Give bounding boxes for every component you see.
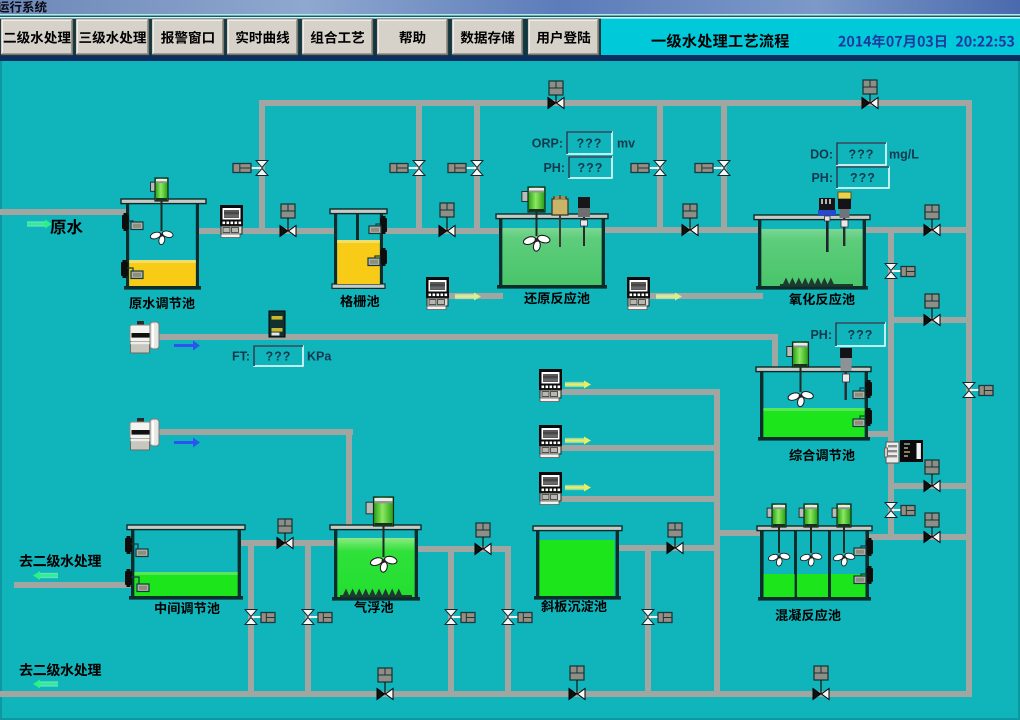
svg-text:???: ???	[578, 161, 604, 175]
svg-text:mv: mv	[617, 137, 635, 151]
svg-text:PH:: PH:	[543, 161, 565, 175]
svg-text:KPa: KPa	[307, 350, 332, 364]
svg-text:ORP:: ORP:	[532, 137, 563, 151]
svg-text:???: ???	[577, 137, 603, 151]
svg-text:FT:: FT:	[232, 350, 250, 364]
svg-text:PH:: PH:	[811, 171, 833, 185]
svg-text:???: ???	[849, 148, 875, 162]
svg-text:???: ???	[848, 328, 874, 342]
svg-text:???: ???	[850, 171, 876, 185]
svg-text:PH:: PH:	[810, 328, 832, 342]
svg-text:mg/L: mg/L	[889, 148, 919, 162]
svg-text:DO:: DO:	[810, 148, 833, 162]
svg-text:???: ???	[266, 350, 292, 364]
